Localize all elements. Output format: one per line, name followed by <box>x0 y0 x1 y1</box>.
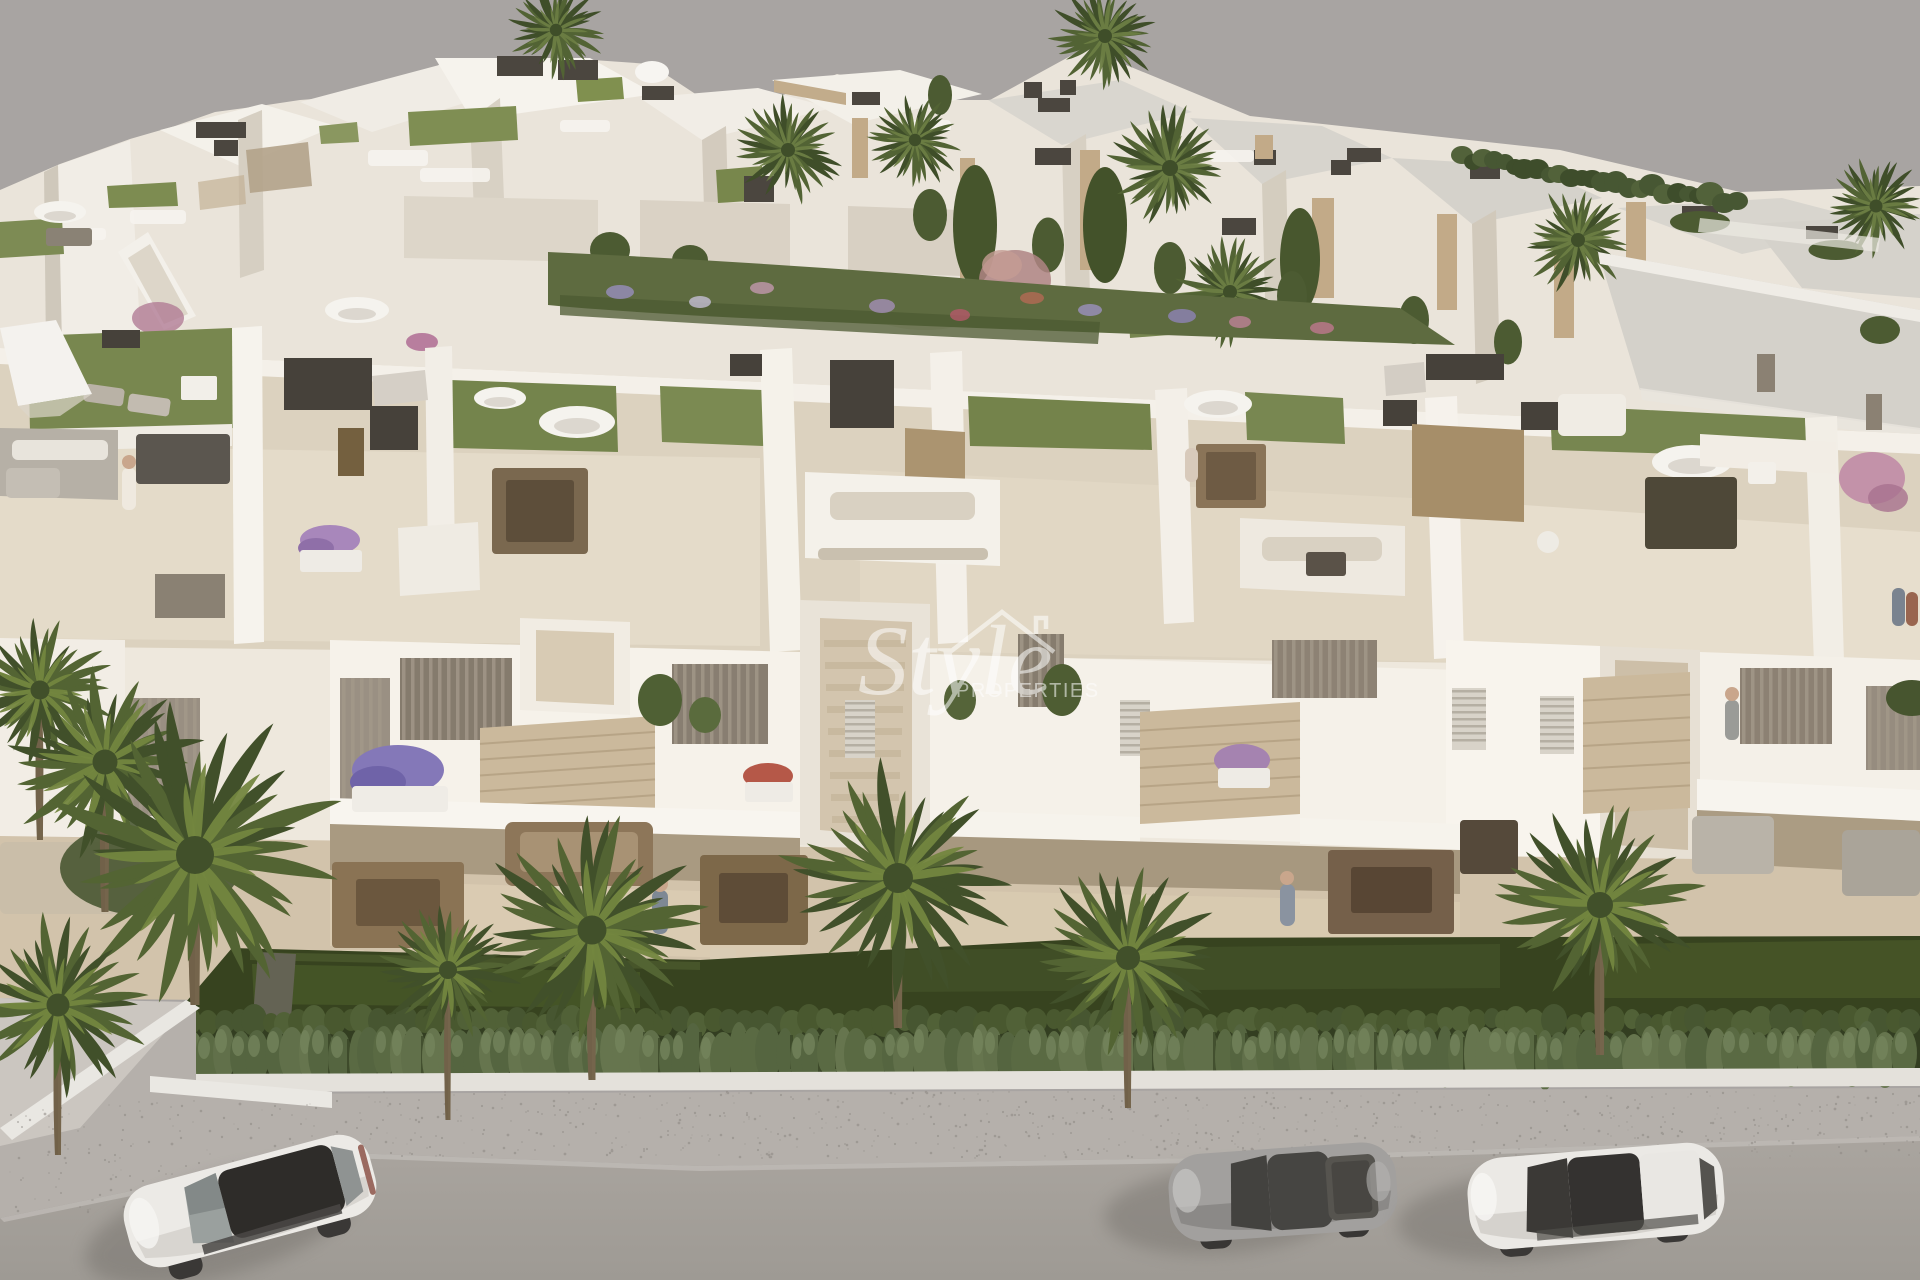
svg-text:PROPERTIES: PROPERTIES <box>956 680 1100 702</box>
